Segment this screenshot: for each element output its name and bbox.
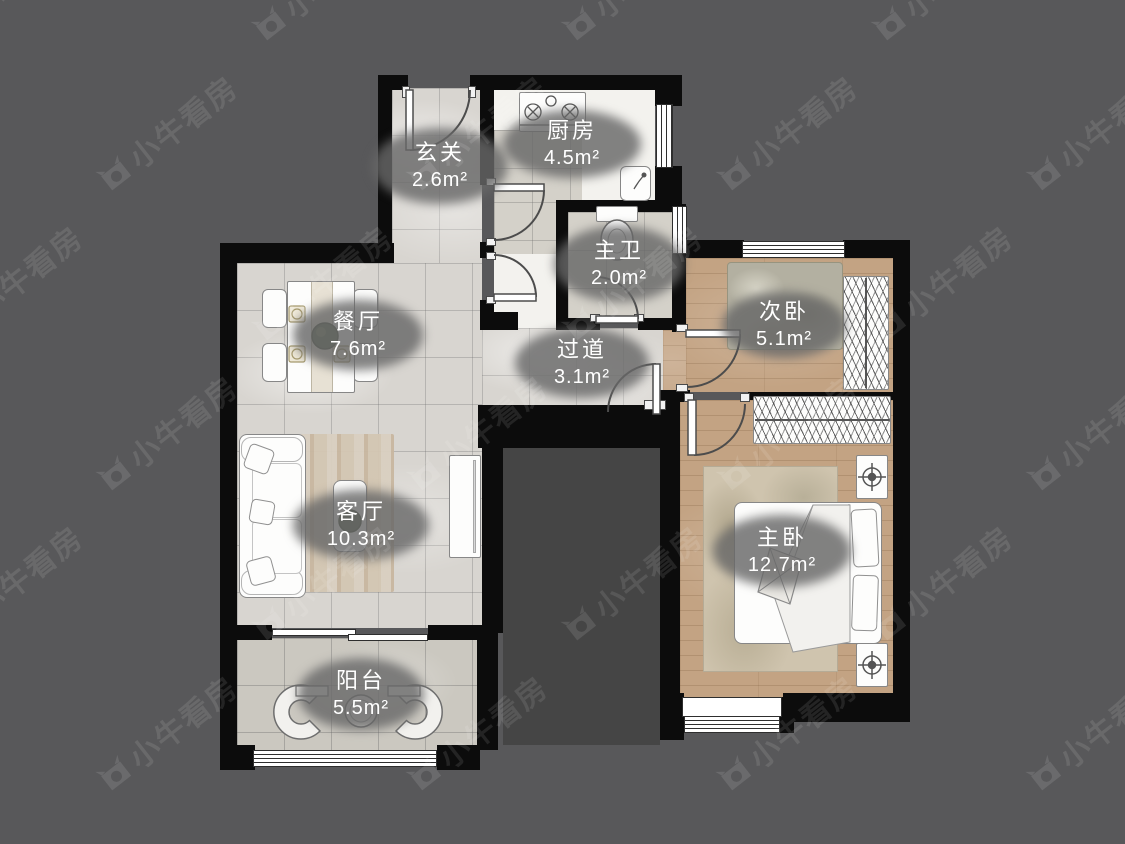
bathroom-door-leaf (596, 316, 638, 323)
room-area: 7.6m² (330, 337, 386, 361)
master-door-leaf (688, 400, 696, 455)
room-name: 次卧 (759, 299, 809, 325)
room-label-living: 客厅 10.3m² (295, 492, 427, 558)
room-name: 过道 (557, 337, 607, 363)
room-name: 厨房 (547, 118, 597, 144)
room-area: 12.7m² (748, 553, 816, 577)
room-name: 阳台 (336, 668, 386, 694)
room-label-balcony: 阳台 5.5m² (300, 660, 422, 728)
room-area: 5.1m² (756, 327, 812, 351)
passage-door-arc (494, 255, 536, 297)
room-name: 主卧 (757, 525, 807, 551)
room-area: 10.3m² (327, 527, 395, 551)
room-name: 主卫 (594, 238, 644, 264)
room-label-kitchen: 厨房 4.5m² (505, 112, 639, 176)
room-label-entry: 玄关 2.6m² (374, 130, 506, 202)
room-area: 4.5m² (544, 146, 600, 170)
lamp-symbol (858, 463, 886, 679)
master-door-arc (694, 404, 745, 455)
room-area: 5.5m² (333, 696, 389, 720)
room-area: 2.0m² (591, 266, 647, 290)
room-label-second-bedroom: 次卧 5.1m² (724, 294, 844, 356)
room-name: 玄关 (415, 140, 465, 166)
room-area: 3.1m² (554, 365, 610, 389)
room-label-master-bedroom: 主卧 12.7m² (715, 517, 849, 585)
floor-plan: 玄关 2.6m² 厨房 4.5m² 主卫 2.0m² 餐厅 7.6m² 过道 3… (0, 0, 1125, 844)
room-label-master-bath: 主卫 2.0m² (556, 228, 682, 300)
room-area: 2.6m² (412, 168, 468, 192)
room-label-dining: 餐厅 7.6m² (295, 302, 421, 368)
room-name: 客厅 (336, 499, 386, 525)
passage-door-leaf (494, 294, 536, 301)
room-name: 餐厅 (333, 309, 383, 335)
room-label-hallway: 过道 3.1m² (517, 330, 647, 396)
hall-end-door-leaf (653, 364, 660, 414)
